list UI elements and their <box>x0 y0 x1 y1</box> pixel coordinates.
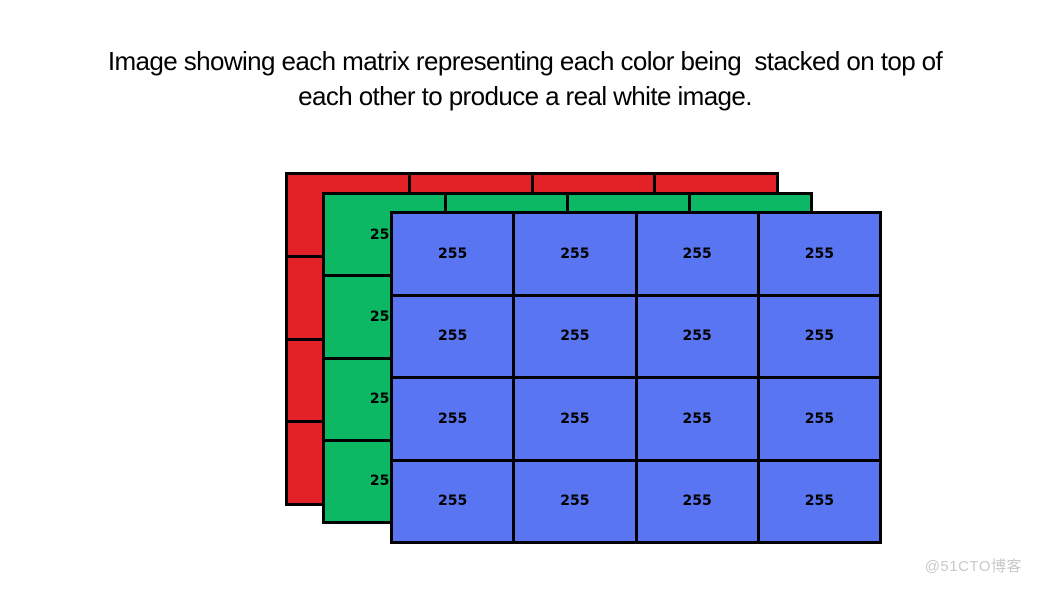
diagram-title: Image showing each matrix representing e… <box>0 44 1050 114</box>
blue-channel-matrix: 255 255 255 255 255 255 255 255 255 255 … <box>390 211 882 544</box>
diagram-title-line1: Image showing each matrix representing e… <box>0 44 1050 79</box>
matrix-cell: 255 <box>638 462 757 542</box>
matrix-cell: 255 <box>393 214 512 294</box>
matrix-cell: 255 <box>638 297 757 377</box>
matrix-cell: 255 <box>515 379 634 459</box>
matrix-cell: 255 <box>760 379 879 459</box>
diagram-title-line2: each other to produce a real white image… <box>0 79 1050 114</box>
matrix-cell: 255 <box>638 214 757 294</box>
matrix-cell: 255 <box>393 379 512 459</box>
matrix-cell: 255 <box>515 297 634 377</box>
matrix-cell: 255 <box>515 462 634 542</box>
matrix-cell: 255 <box>760 214 879 294</box>
matrix-cell: 255 <box>393 462 512 542</box>
matrix-cell: 255 <box>515 214 634 294</box>
matrix-cell: 255 <box>760 462 879 542</box>
watermark: @51CTO博客 <box>925 555 1022 576</box>
matrix-cell: 255 <box>393 297 512 377</box>
matrix-cell: 255 <box>760 297 879 377</box>
matrix-cell: 255 <box>638 379 757 459</box>
